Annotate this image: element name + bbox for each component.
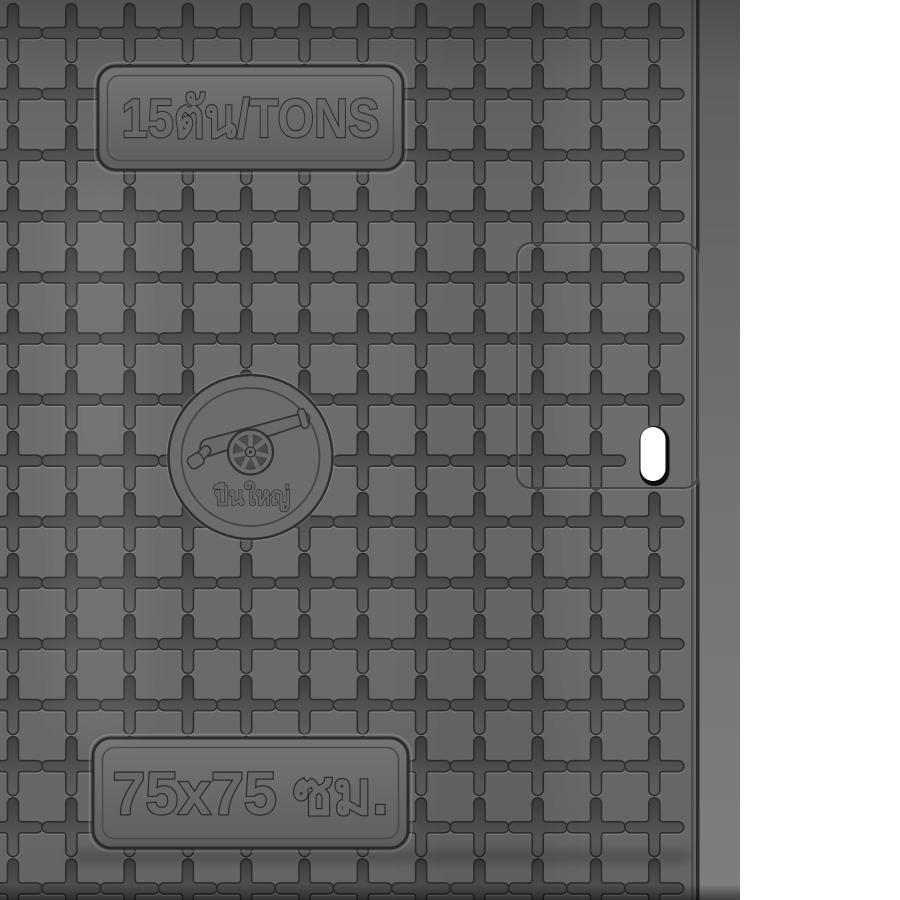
manhole-cover: 15ตัน/TONS ปืนใหญ่ <box>0 0 740 900</box>
lift-slot-hole <box>641 427 666 481</box>
photo-background <box>740 0 900 900</box>
size-text: 75x75 ซม. <box>113 760 389 827</box>
brand-text: ปืนใหญ่ <box>213 481 290 512</box>
brand-logo: ปืนใหญ่ <box>167 373 335 541</box>
cover-side-band <box>699 0 740 900</box>
size-plaque: 75x75 ซม. <box>90 735 412 852</box>
load-rating-text: 15ตัน/TONS <box>122 87 380 149</box>
load-rating-plaque: 15ตัน/TONS <box>95 63 407 174</box>
edge-groove-line <box>691 0 694 900</box>
lift-slot <box>640 426 670 486</box>
wheel-hub-dot <box>249 450 252 453</box>
product-photo-stage: 15ตัน/TONS ปืนใหญ่ <box>0 0 900 900</box>
cannon-wheel-icon <box>228 430 273 475</box>
